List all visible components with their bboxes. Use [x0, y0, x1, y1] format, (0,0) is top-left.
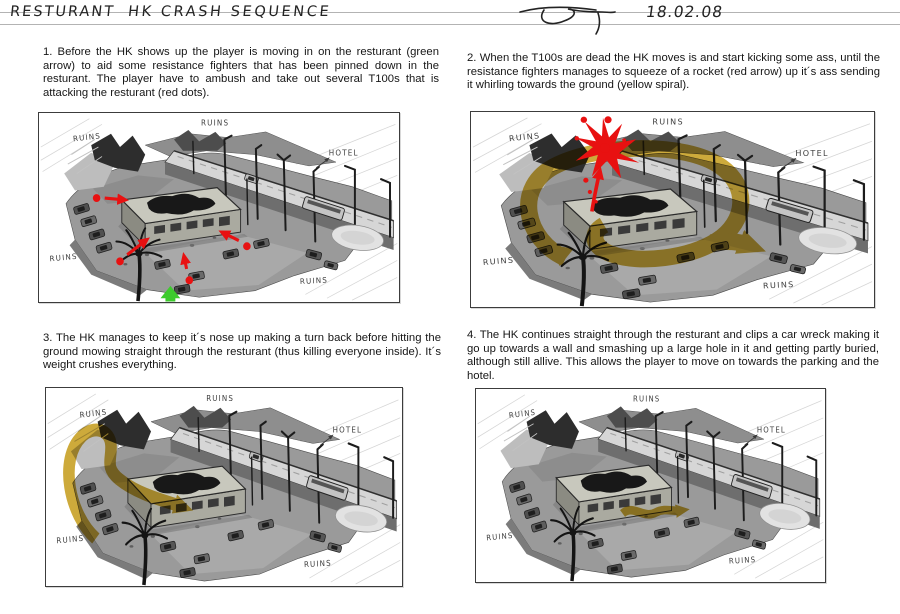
t100-dot: [116, 257, 124, 265]
storyboard-page: RESTURANT HK CRASH SEQUENCE 18.02.08 1. …: [0, 0, 900, 614]
t100-dot: [186, 276, 194, 284]
panel-4-sketch: [475, 388, 826, 583]
panel-2-sketch: [470, 111, 875, 308]
t100-dot: [243, 242, 251, 250]
signature-scribble: [516, 0, 636, 36]
panel-3-caption: 3. The HK manages to keep it´s nose up m…: [43, 332, 441, 373]
t100-dot: [93, 194, 101, 202]
panel-3-sketch: [45, 387, 403, 587]
splatter-dot: [581, 117, 587, 123]
panel-1-caption: 1. Before the HK shows up the player is …: [43, 46, 439, 101]
date-text: 18.02.08: [645, 3, 725, 21]
hk-crash-arrow: [623, 510, 681, 514]
scene-sketch: [48, 394, 400, 586]
splatter-dot: [604, 116, 611, 123]
sequence-title: HK CRASH SEQUENCE: [127, 4, 332, 20]
splatter-dot: [622, 138, 626, 142]
t100-attack-arrow: [105, 198, 126, 200]
header-rule-bottom: [0, 24, 900, 25]
panel-4-caption: 4. The HK continues straight through the…: [467, 329, 879, 384]
project-title: RESTURANT: [9, 4, 116, 20]
panel-2-caption: 2. When the T100s are dead the HK moves …: [467, 52, 880, 93]
splatter-dot: [575, 136, 579, 140]
scene-sketch: [478, 394, 824, 581]
panel-1-sketch: [38, 112, 400, 303]
scene-sketch: [41, 118, 397, 301]
